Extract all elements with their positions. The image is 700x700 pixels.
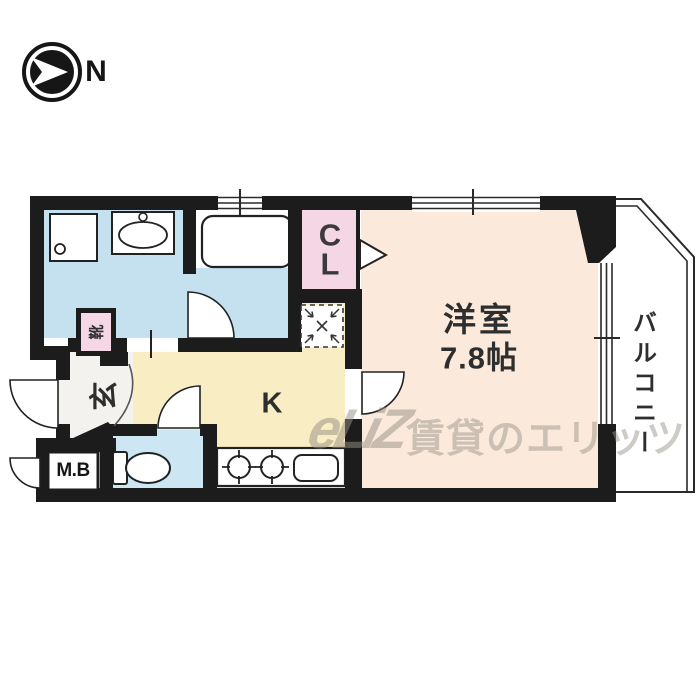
washbasin-tap [139, 213, 147, 221]
closet-label: CL [317, 221, 342, 280]
entrance-label: 玄 [81, 381, 123, 410]
wall-entrance-jamb-top [56, 358, 70, 380]
wall-top-right [540, 196, 582, 210]
floor-plan-page: N 洋室 7.8帖 K CL 玄 靴 M.B バルコニー eLiZ 賃貸のエリッ… [0, 0, 700, 700]
wall-washroom-bath [183, 210, 196, 274]
wall-toilet-right [203, 430, 217, 490]
western-room-size: 7.8帖 [440, 333, 518, 378]
wall-top-center [262, 196, 412, 210]
wall-bath-closet [288, 210, 302, 352]
wall-kitchen-room-lower [345, 419, 362, 490]
floor-plan [0, 0, 700, 700]
stove-burner-left [228, 456, 250, 478]
wall-closet-bottom [294, 289, 352, 303]
window-western-room-top [412, 189, 540, 215]
meter-box-label: M.B [56, 460, 89, 482]
wall-left-stub [30, 346, 70, 360]
toilet-tank [113, 452, 127, 484]
wall-left [30, 196, 44, 360]
washroom-doorway [127, 338, 178, 352]
refrigerator-space-icon [301, 305, 343, 347]
compass-icon [24, 44, 80, 100]
wall-washroom-bottom-right [178, 338, 302, 352]
meter-box-door [10, 458, 40, 488]
window-bath [218, 189, 262, 215]
wall-meter-box-right [100, 436, 113, 490]
washbasin-bowl [119, 222, 167, 248]
kitchen-sink [294, 455, 338, 481]
toilet-bowl [126, 453, 170, 483]
kitchen-label: K [262, 388, 283, 421]
wall-top-left [30, 196, 218, 210]
wall-kitchen-room-upper [345, 289, 362, 369]
shoe-cabinet-label: 靴 [86, 324, 107, 339]
stove-burner-right [261, 456, 283, 478]
bathtub [202, 216, 292, 267]
balcony-label: バルコニー [625, 310, 660, 460]
wall-bottom [36, 488, 616, 502]
compass-north-label: N [85, 55, 107, 89]
entrance-door [10, 380, 58, 428]
